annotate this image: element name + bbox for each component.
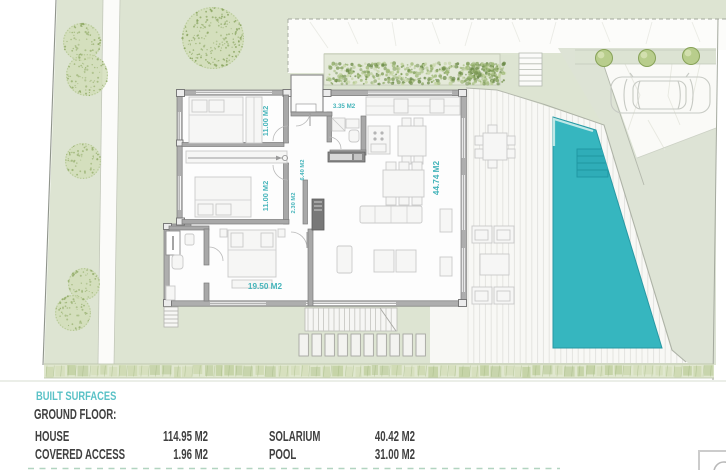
svg-text:1.96 M2: 1.96 M2	[173, 446, 208, 462]
svg-text:COVERED ACCESS: COVERED ACCESS	[35, 446, 125, 462]
svg-text:SOLARIUM: SOLARIUM	[269, 428, 320, 444]
svg-text:31.00 M2: 31.00 M2	[375, 446, 415, 462]
svg-text:2.30 M2: 2.30 M2	[291, 193, 297, 214]
svg-text:GROUND FLOOR:: GROUND FLOOR:	[34, 406, 116, 422]
svg-text:40.42 M2: 40.42 M2	[375, 428, 415, 444]
svg-text:11.00 M2: 11.00 M2	[261, 181, 270, 211]
svg-text:44.74 M2: 44.74 M2	[432, 160, 441, 195]
svg-text:POOL: POOL	[269, 446, 297, 462]
svg-text:19.50 M2: 19.50 M2	[248, 282, 283, 291]
svg-text:11.00 M2: 11.00 M2	[261, 106, 270, 136]
svg-text:HOUSE: HOUSE	[35, 428, 69, 444]
svg-text:3.35 M2: 3.35 M2	[333, 103, 356, 110]
svg-text:114.95 M2: 114.95 M2	[163, 428, 208, 444]
svg-text:6.40 M2: 6.40 M2	[300, 160, 306, 181]
svg-text:BUILT SURFACES: BUILT SURFACES	[36, 390, 116, 403]
